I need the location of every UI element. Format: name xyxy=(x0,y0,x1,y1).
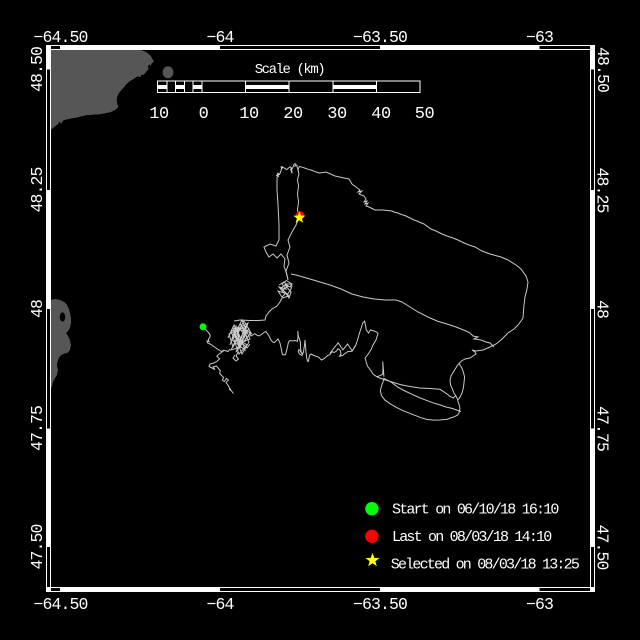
svg-text:−63: −63 xyxy=(526,595,553,614)
svg-text:−64.50: −64.50 xyxy=(33,595,87,614)
svg-text:47.50: 47.50 xyxy=(593,524,612,569)
svg-text:0: 0 xyxy=(199,105,209,124)
svg-text:−64.50: −64.50 xyxy=(33,28,87,47)
svg-text:47.75: 47.75 xyxy=(593,406,612,451)
svg-text:48.50: 48.50 xyxy=(28,47,47,92)
svg-text:47.75: 47.75 xyxy=(28,406,47,451)
svg-text:−64: −64 xyxy=(206,28,234,47)
svg-text:50: 50 xyxy=(415,105,435,124)
svg-text:−63: −63 xyxy=(526,28,553,47)
svg-text:10: 10 xyxy=(239,105,259,124)
svg-text:Start on 06/10/18 16:10: Start on 06/10/18 16:10 xyxy=(392,502,559,519)
svg-text:−64: −64 xyxy=(206,595,234,614)
svg-text:−63.50: −63.50 xyxy=(353,595,407,614)
svg-text:Last on 08/03/18 14:10: Last on 08/03/18 14:10 xyxy=(392,529,552,546)
svg-text:10: 10 xyxy=(149,105,169,124)
svg-text:48: 48 xyxy=(593,300,612,318)
svg-text:30: 30 xyxy=(327,105,347,124)
svg-text:48.25: 48.25 xyxy=(28,167,47,212)
svg-text:Selected on 08/03/18 13:25: Selected on 08/03/18 13:25 xyxy=(391,557,580,574)
svg-text:48.50: 48.50 xyxy=(593,47,612,92)
svg-text:48.25: 48.25 xyxy=(593,167,612,212)
svg-text:48: 48 xyxy=(28,300,47,318)
svg-text:20: 20 xyxy=(283,105,303,124)
svg-text:40: 40 xyxy=(371,105,391,124)
svg-text:−63.50: −63.50 xyxy=(353,28,407,47)
svg-text:47.50: 47.50 xyxy=(28,524,47,569)
svg-text:Scale (km): Scale (km) xyxy=(255,62,325,78)
